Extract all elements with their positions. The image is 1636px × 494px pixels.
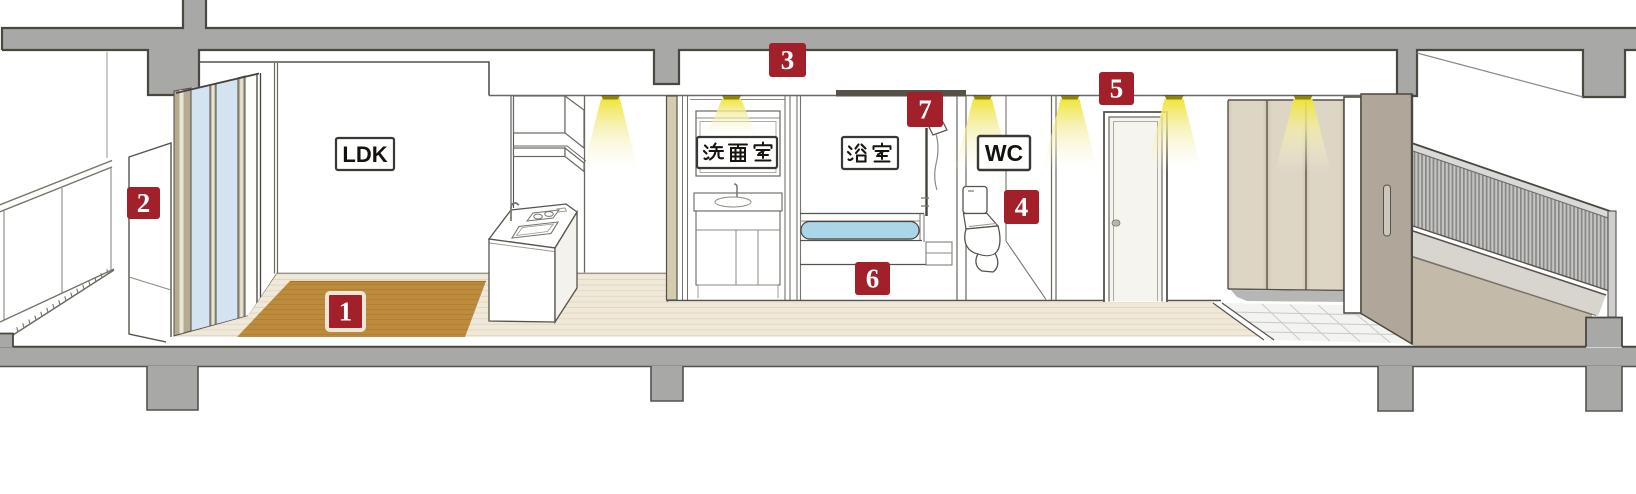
svg-text:4: 4 [1015,192,1029,222]
svg-text:2: 2 [137,188,151,218]
svg-text:7: 7 [918,95,932,125]
svg-text:6: 6 [866,264,880,294]
svg-text:5: 5 [1110,74,1124,104]
svg-text:1: 1 [339,297,353,327]
svg-text:LDK: LDK [342,142,387,167]
svg-text:3: 3 [781,45,795,75]
svg-text:WC: WC [985,140,1023,166]
